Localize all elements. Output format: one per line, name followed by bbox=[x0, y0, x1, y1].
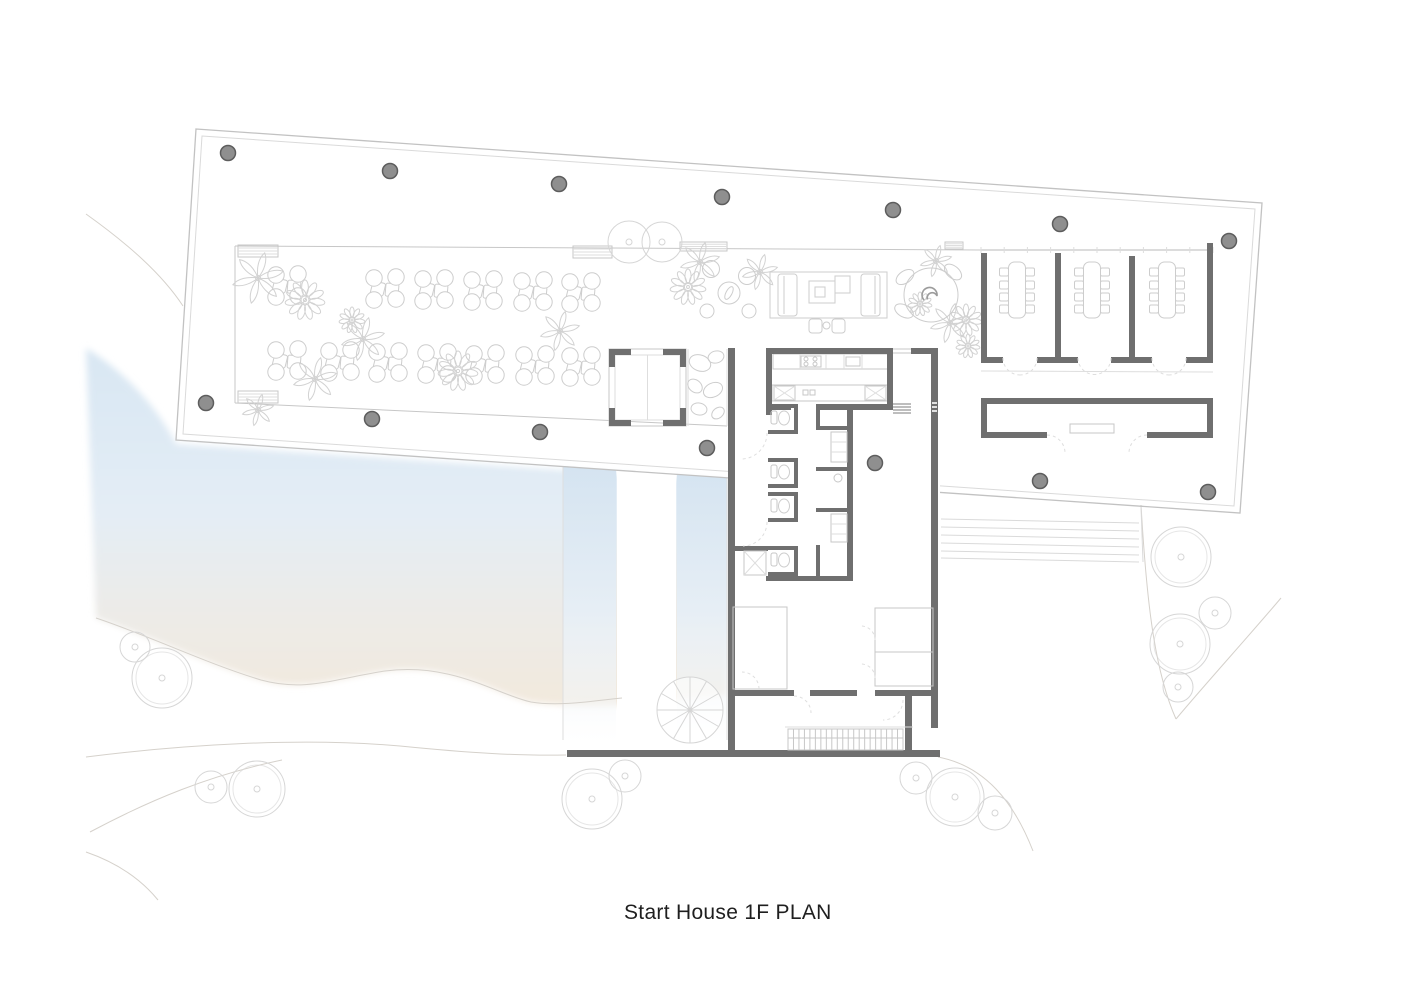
reception-corridor bbox=[981, 398, 1213, 453]
dining-area bbox=[268, 266, 600, 386]
plan-title: Start House 1F PLAN bbox=[624, 901, 832, 925]
floor-plan-page: Start House 1F PLAN bbox=[0, 0, 1415, 1000]
spiral-stair bbox=[657, 677, 723, 743]
elevator-core bbox=[609, 349, 727, 426]
lounge-area bbox=[700, 261, 965, 334]
floor-plan-canvas bbox=[0, 0, 1415, 1000]
meeting-rooms bbox=[981, 243, 1213, 375]
exterior-steps bbox=[941, 507, 1143, 562]
